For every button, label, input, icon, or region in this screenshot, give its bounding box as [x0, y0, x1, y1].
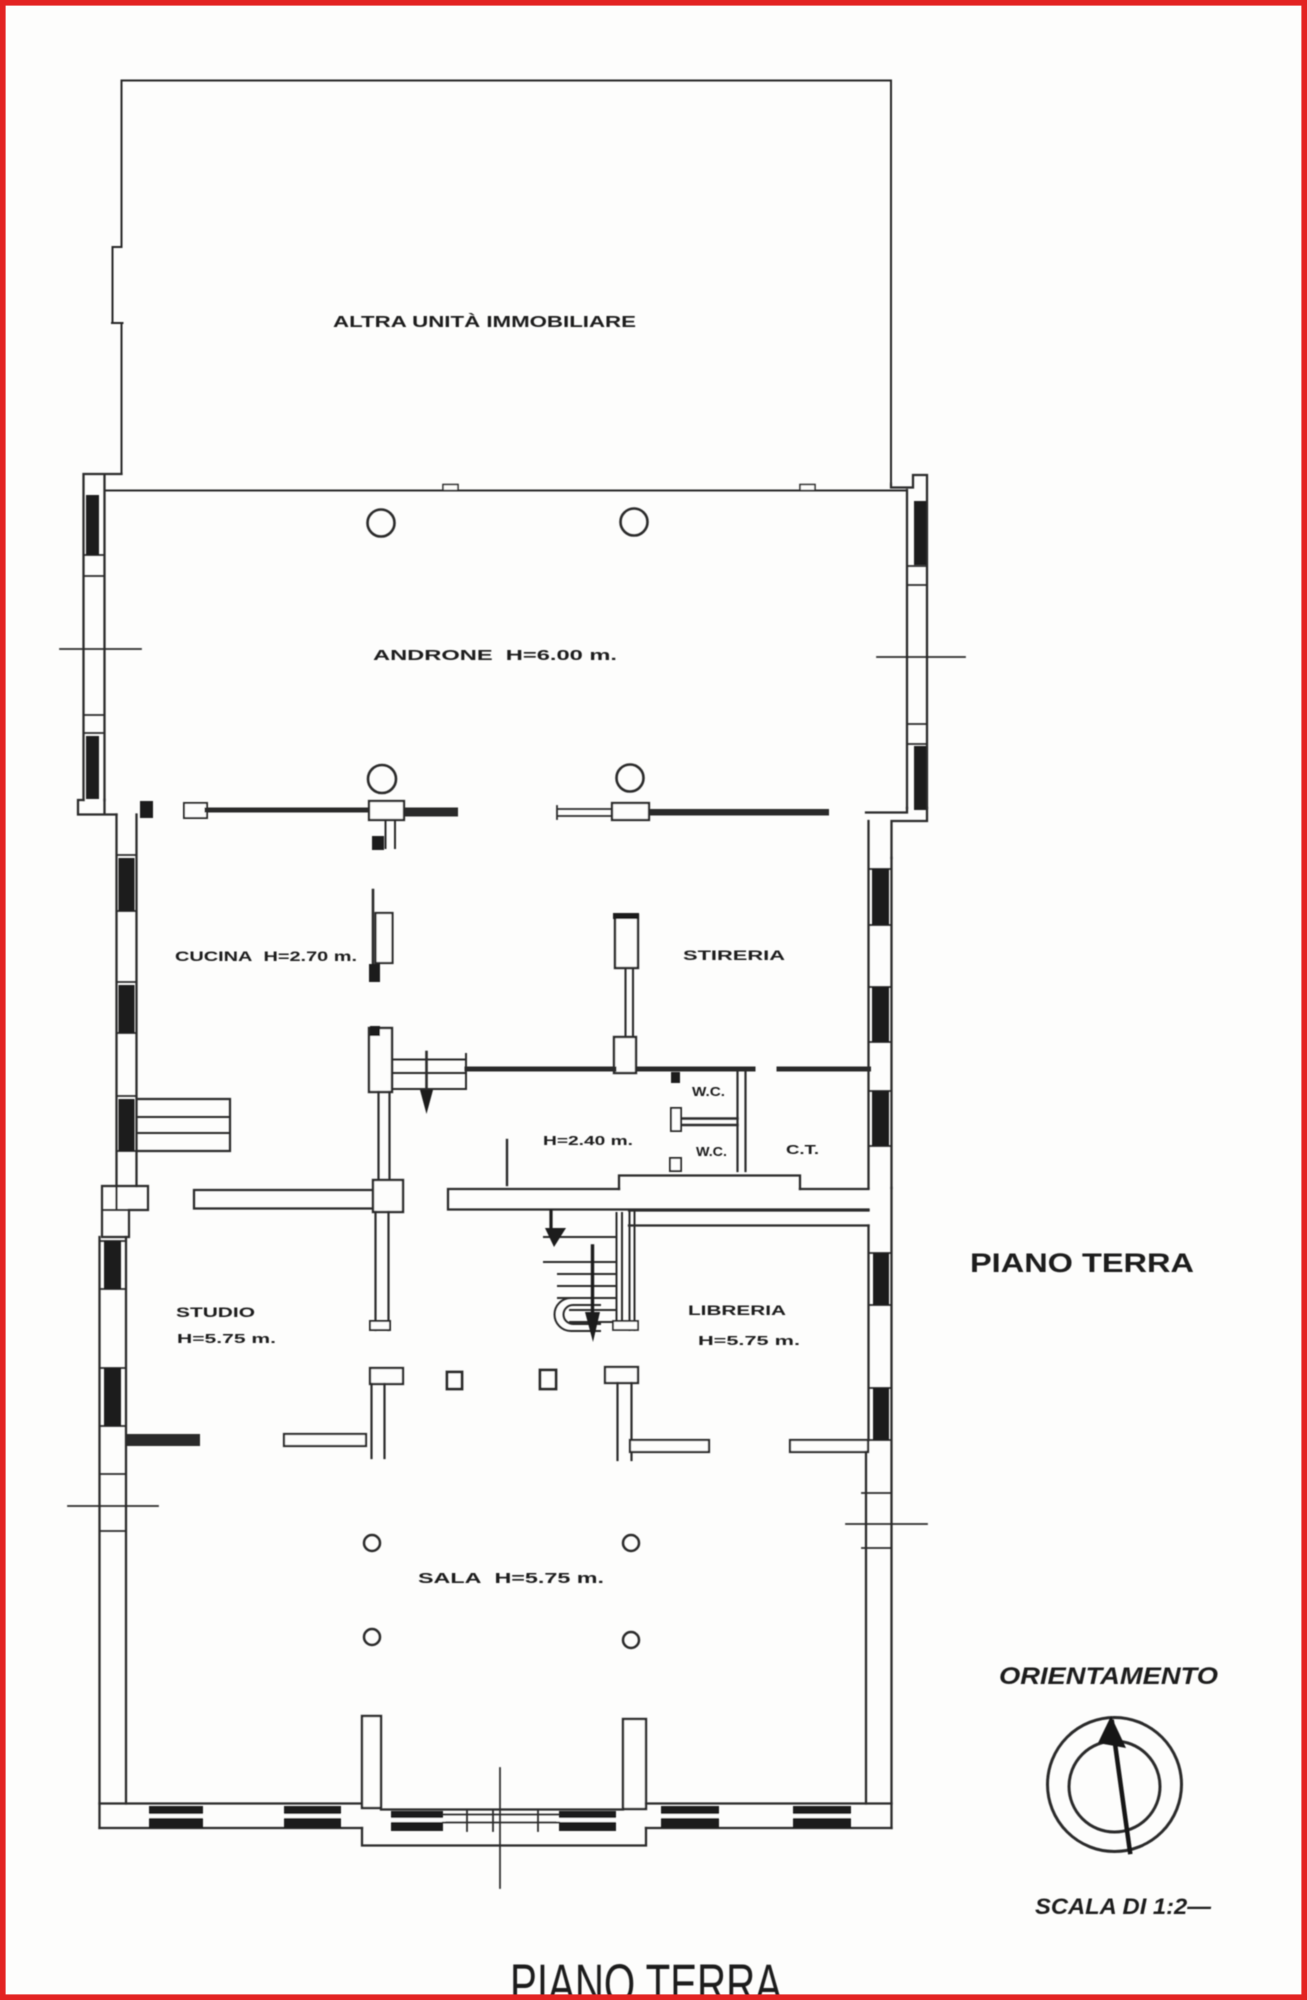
svg-text:CUCINA H=2.70 m.: CUCINA H=2.70 m. — [175, 949, 357, 964]
svg-text:PIANO TERRA: PIANO TERRA — [970, 1248, 1194, 1278]
svg-text:SCALA DI 1:2―: SCALA DI 1:2― — [1035, 1894, 1212, 1919]
svg-text:W.C.: W.C. — [696, 1145, 727, 1159]
svg-text:H=5.75 m.: H=5.75 m. — [698, 1333, 800, 1348]
svg-text:W.C.: W.C. — [692, 1085, 725, 1099]
svg-text:ANDRONE H=6.00 m.: ANDRONE H=6.00 m. — [373, 647, 617, 664]
svg-text:ALTRA UNITÀ IMMOBILIARE: ALTRA UNITÀ IMMOBILIARE — [333, 314, 636, 331]
svg-text:C.T.: C.T. — [786, 1143, 819, 1157]
svg-text:H=2.40 m.: H=2.40 m. — [543, 1133, 633, 1148]
svg-text:SALA H=5.75 m.: SALA H=5.75 m. — [418, 1571, 604, 1587]
svg-text:LIBRERIA: LIBRERIA — [688, 1303, 786, 1318]
svg-text:STUDIO: STUDIO — [176, 1305, 255, 1320]
svg-text:H=5.75 m.: H=5.75 m. — [177, 1331, 276, 1346]
svg-text:ORIENTAMENTO: ORIENTAMENTO — [999, 1663, 1218, 1690]
svg-text:STIRERIA: STIRERIA — [683, 948, 785, 963]
svg-text:PIANO TERRA: PIANO TERRA — [510, 1952, 782, 2000]
